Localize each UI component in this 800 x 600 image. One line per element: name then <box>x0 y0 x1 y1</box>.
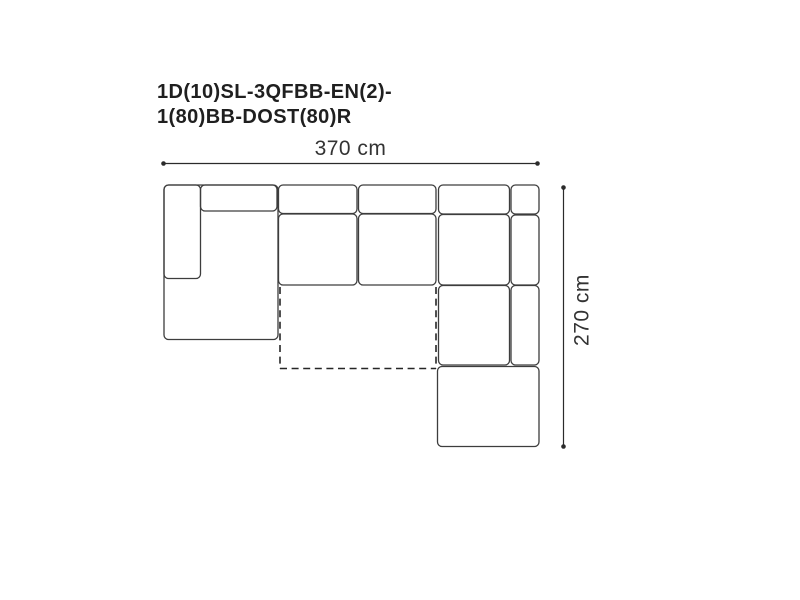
right-armrest-lower <box>511 286 539 366</box>
left-armrest <box>164 185 201 279</box>
sofa-spec-diagram-page: 1D(10)SL-3QFBB-EN(2)- 1(80)BB-DOST(80)R … <box>0 0 800 600</box>
sofa-top-view-diagram: 370 cm 270 cm <box>0 0 800 600</box>
width-dimension-line-start-dot <box>161 161 166 166</box>
ottoman <box>438 367 540 447</box>
middle-backrest-1 <box>279 185 358 214</box>
depth-dimension-line-start-dot <box>561 185 566 190</box>
right-seat-lower <box>439 286 510 366</box>
middle-backrest-2 <box>359 185 437 214</box>
right-seat-upper <box>439 215 510 286</box>
dimension-layer <box>161 161 566 449</box>
left-chaise-outline <box>164 185 278 340</box>
right-armrest-upper <box>511 215 539 285</box>
right-corner-piece <box>511 185 539 214</box>
left-backrest <box>201 185 278 211</box>
right-backrest <box>439 185 510 214</box>
modules-layer <box>164 185 539 447</box>
depth-dimension-label: 270 cm <box>571 274 594 346</box>
middle-seat-1 <box>279 214 358 285</box>
width-dimension-line-end-dot <box>535 161 540 166</box>
depth-dimension-line-end-dot <box>561 444 566 449</box>
pullout-bed-dashed-layer <box>280 287 436 369</box>
width-dimension-label: 370 cm <box>315 137 387 160</box>
middle-seat-2 <box>359 214 437 285</box>
